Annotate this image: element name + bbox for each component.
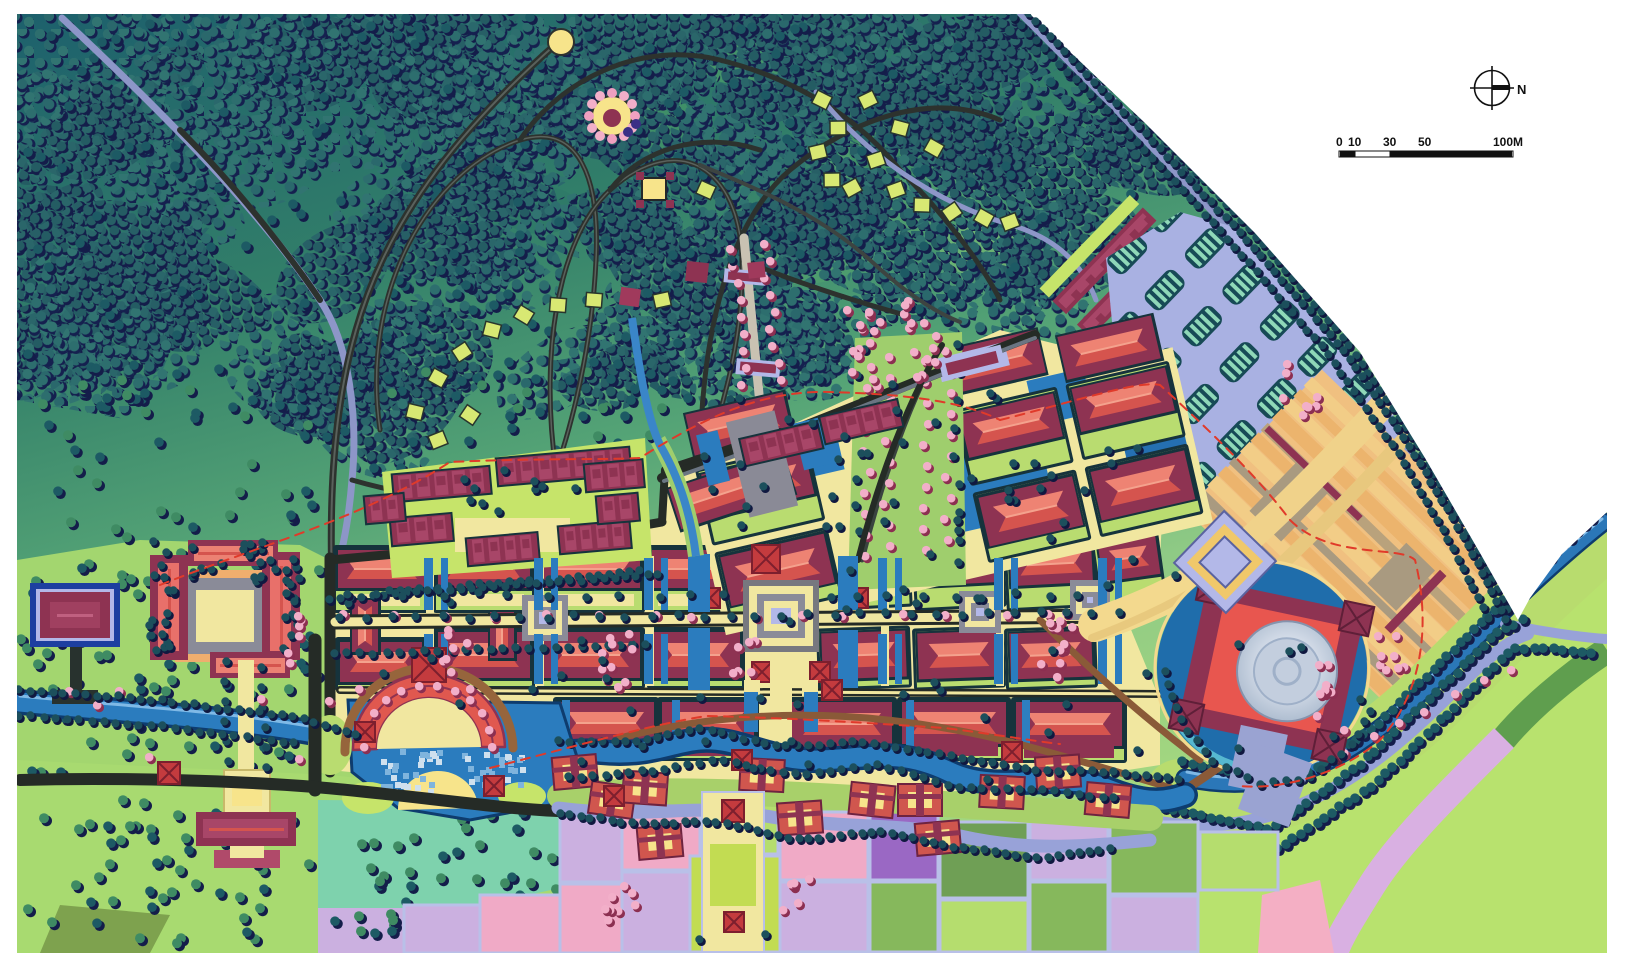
svg-text:30: 30 <box>1383 135 1397 149</box>
svg-text:10: 10 <box>1348 135 1362 149</box>
svg-text:100M: 100M <box>1493 135 1523 149</box>
svg-text:N: N <box>1517 82 1526 97</box>
svg-text:50: 50 <box>1418 135 1432 149</box>
svg-text:0: 0 <box>1336 135 1343 149</box>
